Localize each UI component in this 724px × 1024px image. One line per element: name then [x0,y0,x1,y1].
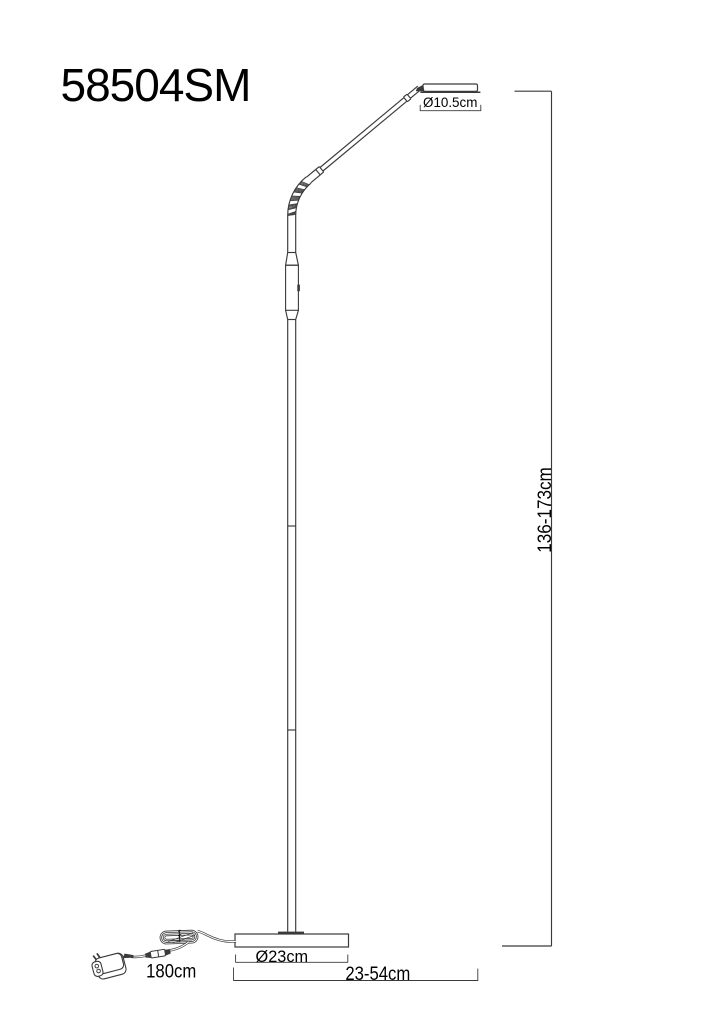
svg-text:23-54cm: 23-54cm [345,963,410,984]
svg-text:180cm: 180cm [146,960,196,981]
svg-text:Ø10.5cm: Ø10.5cm [423,95,477,110]
svg-text:136-173cm: 136-173cm [534,467,555,553]
svg-text:58504SM: 58504SM [61,59,251,111]
svg-text:Ø23cm: Ø23cm [256,948,308,966]
